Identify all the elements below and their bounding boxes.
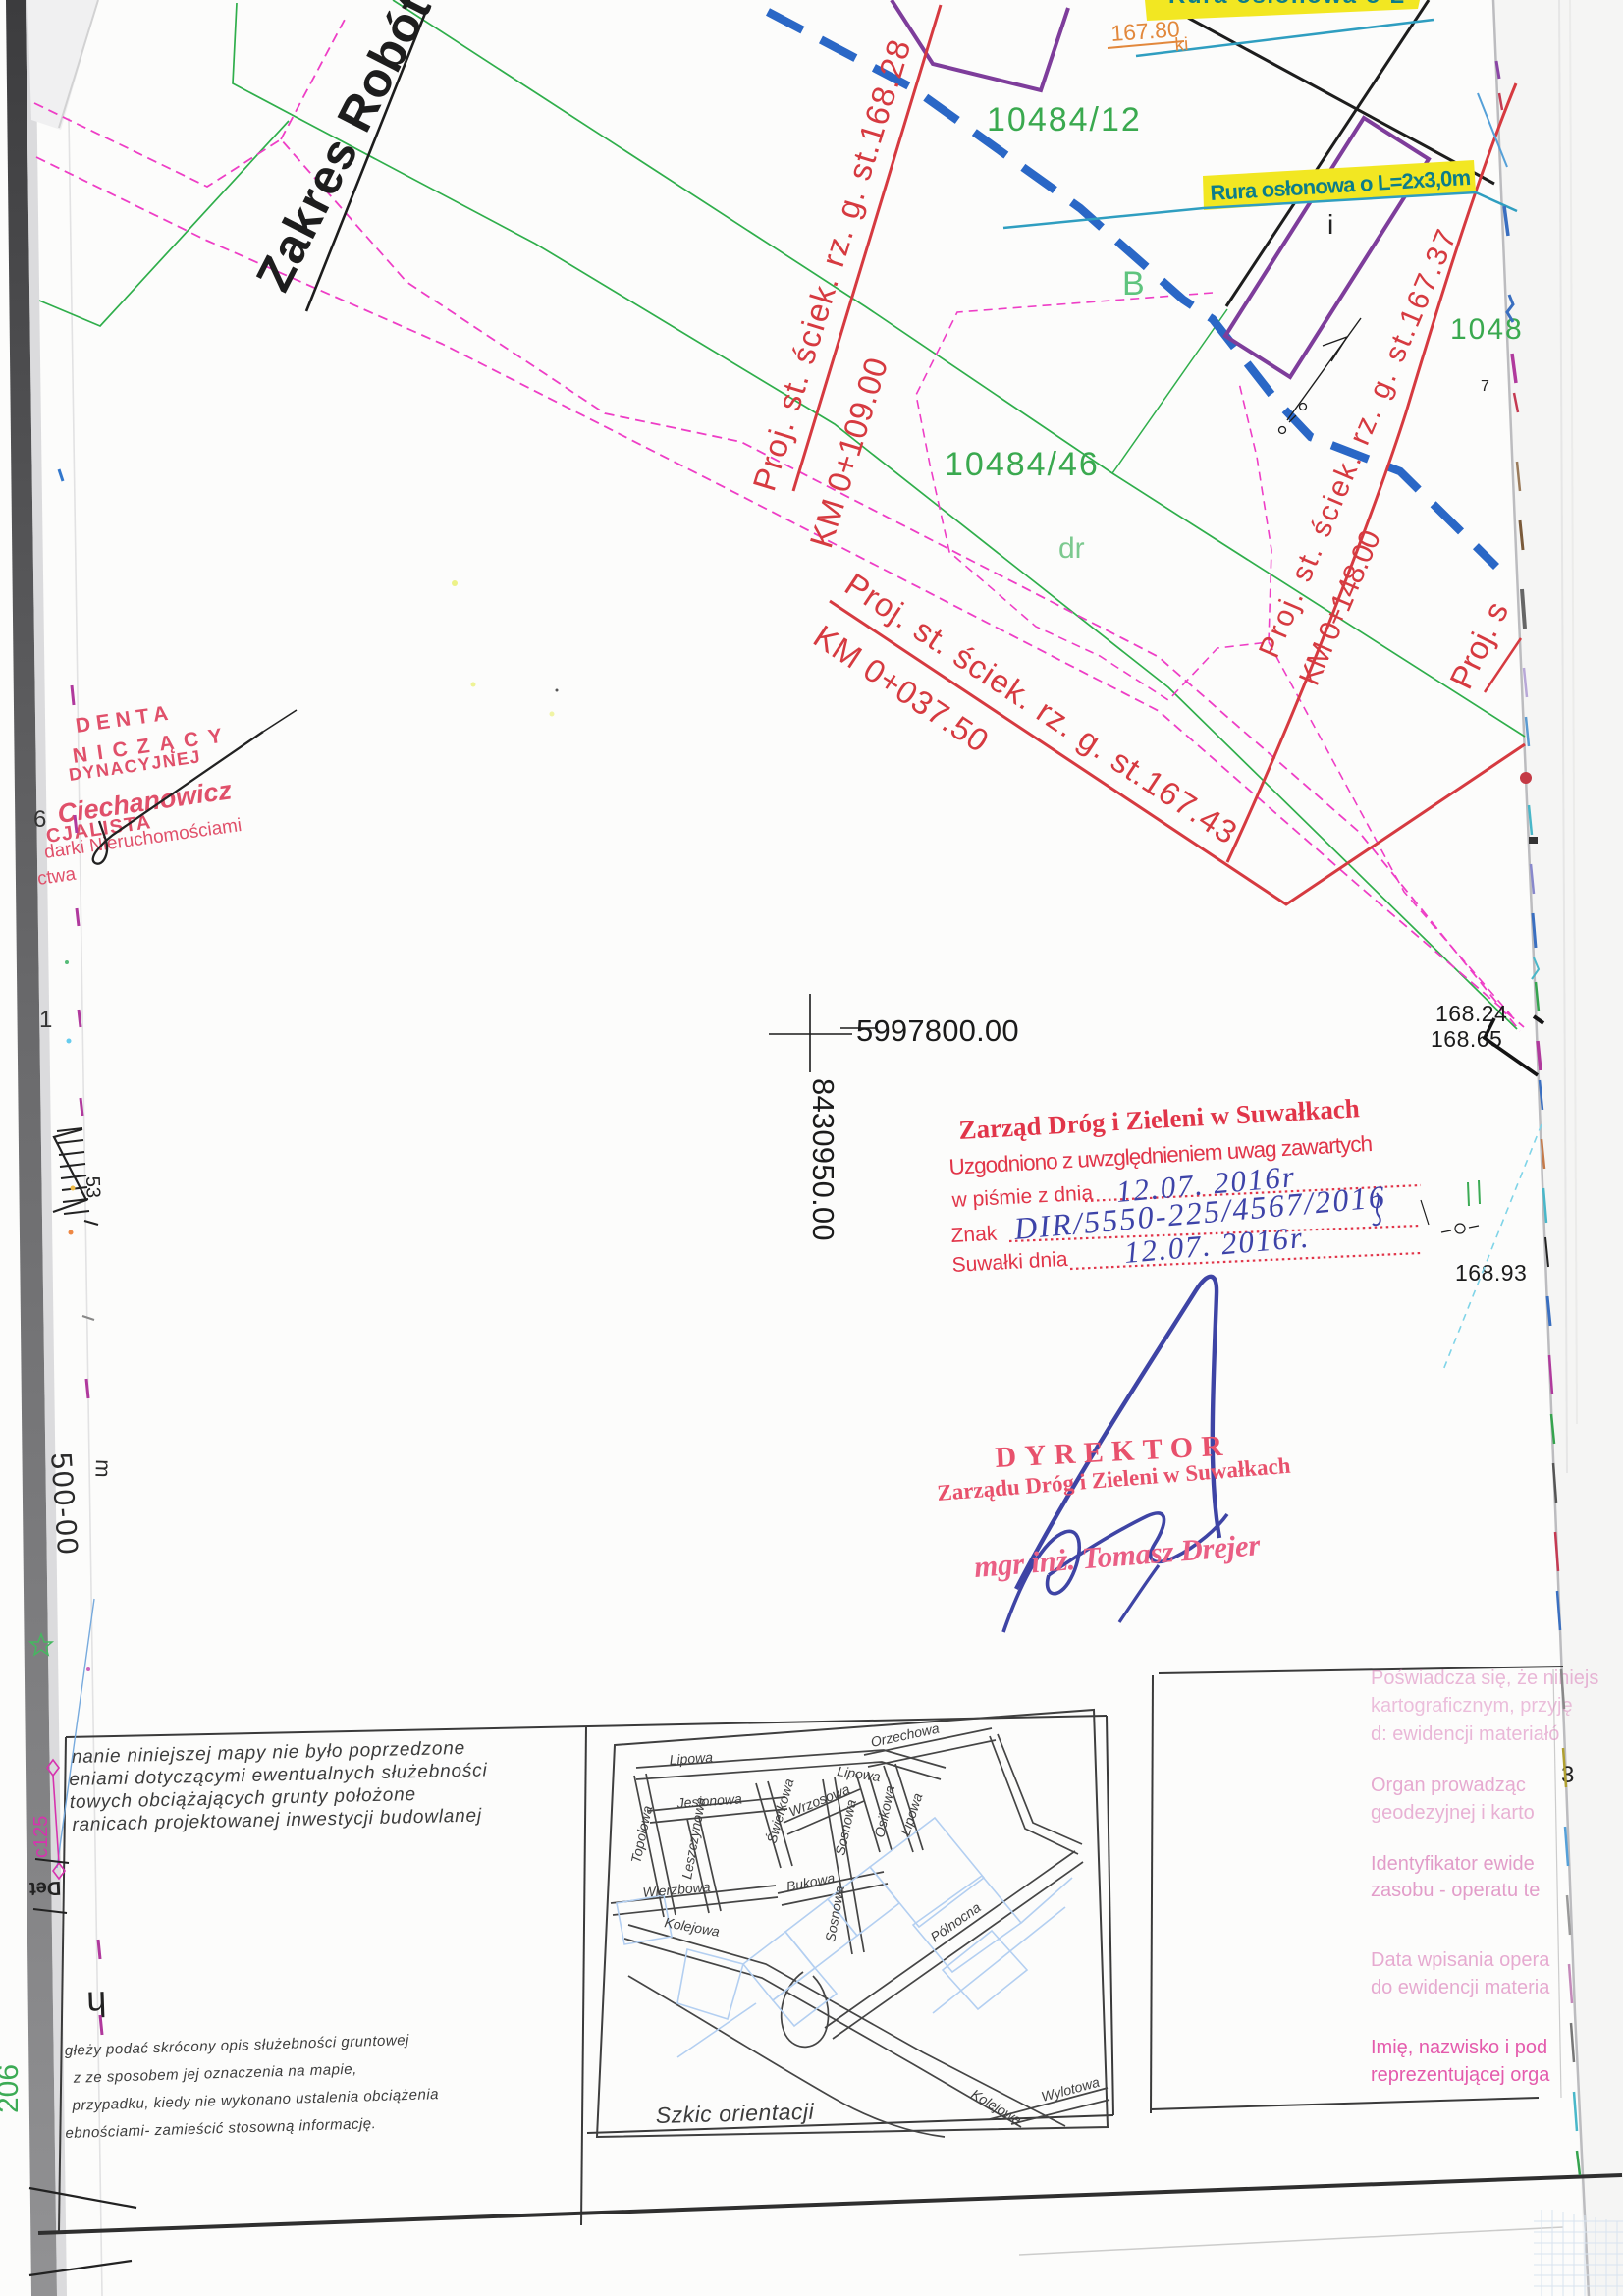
svg-text:Lipowa: Lipowa	[669, 1749, 714, 1768]
svg-text:Imię, nazwisko i pod: Imię, nazwisko i pod	[1371, 2037, 1547, 2058]
svg-text:168.93: 168.93	[1455, 1260, 1527, 1285]
svg-text:i: i	[1327, 209, 1333, 240]
svg-text:10484/12: 10484/12	[987, 101, 1142, 138]
svg-text:reprezentującej orga: reprezentującej orga	[1371, 2064, 1550, 2086]
svg-text:53: 53	[81, 1175, 104, 1198]
svg-text:m: m	[90, 1459, 116, 1478]
svg-text:8430950.00: 8430950.00	[806, 1078, 840, 1241]
svg-text:7: 7	[1481, 378, 1489, 395]
svg-text:d: ewidencji materiałó: d: ewidencji materiałó	[1371, 1723, 1559, 1745]
svg-text:zasobu - operatu te: zasobu - operatu te	[1371, 1880, 1540, 1901]
svg-text:1: 1	[39, 1007, 52, 1033]
svg-text:dr: dr	[1058, 532, 1085, 565]
svg-text:3: 3	[1561, 1762, 1574, 1788]
svg-text:1048: 1048	[1450, 313, 1524, 346]
svg-text:Rura osłonowa o L: Rura osłonowa o L	[1168, 0, 1404, 9]
svg-text:h: h	[86, 1984, 107, 2025]
svg-text:do ewidencji materia: do ewidencji materia	[1371, 1977, 1550, 1998]
svg-text:Znak: Znak	[950, 1223, 998, 1247]
svg-text:geodezyjnej i karto: geodezyjnej i karto	[1371, 1802, 1535, 1824]
svg-text:Poświadcza się, że niniejs: Poświadcza się, że niniejs	[1371, 1667, 1598, 1689]
svg-text:Identyfikator ewide: Identyfikator ewide	[1371, 1853, 1535, 1875]
svg-text:5997800.00: 5997800.00	[856, 1013, 1019, 1048]
svg-text:206: 206	[0, 2064, 25, 2113]
svg-text:c125: c125	[30, 1816, 52, 1858]
svg-text:ki: ki	[1174, 34, 1189, 56]
svg-text:B: B	[1122, 265, 1145, 302]
svg-text:6: 6	[33, 806, 46, 833]
svg-text:kartograficznym, przyję: kartograficznym, przyję	[1371, 1695, 1573, 1717]
svg-text:Data wpisania opera: Data wpisania opera	[1371, 1949, 1550, 1971]
svg-text:Szkic orientacji: Szkic orientacji	[655, 2099, 814, 2128]
svg-text:Organ prowadząc: Organ prowadząc	[1371, 1775, 1526, 1796]
svg-text:Det: Det	[28, 1877, 61, 1899]
svg-text:168.65: 168.65	[1431, 1026, 1502, 1052]
svg-text:10484/46: 10484/46	[945, 446, 1100, 483]
svg-text:168.24: 168.24	[1435, 1001, 1507, 1026]
